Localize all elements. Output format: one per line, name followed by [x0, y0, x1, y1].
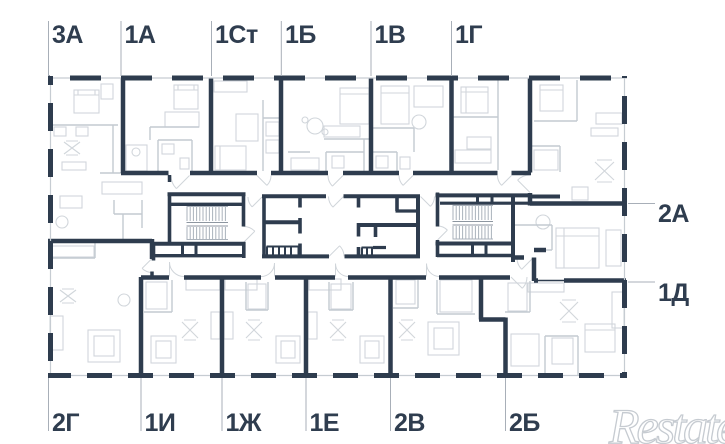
- svg-text:1Е: 1Е: [310, 409, 340, 437]
- svg-text:1Г: 1Г: [455, 21, 482, 49]
- svg-text:3А: 3А: [52, 21, 83, 49]
- svg-text:1И: 1И: [145, 409, 176, 437]
- svg-text:1Б: 1Б: [285, 21, 316, 49]
- svg-text:Restate: Restate: [608, 398, 725, 444]
- svg-text:2Б: 2Б: [509, 409, 540, 437]
- svg-text:1Д: 1Д: [658, 279, 689, 307]
- svg-text:1Ж: 1Ж: [226, 409, 262, 437]
- svg-text:1В: 1В: [375, 21, 406, 49]
- svg-text:1Ст: 1Ст: [215, 21, 258, 49]
- svg-text:2А: 2А: [658, 200, 689, 228]
- svg-text:1А: 1А: [125, 21, 156, 49]
- svg-text:2В: 2В: [394, 409, 425, 437]
- svg-text:2Г: 2Г: [52, 409, 79, 437]
